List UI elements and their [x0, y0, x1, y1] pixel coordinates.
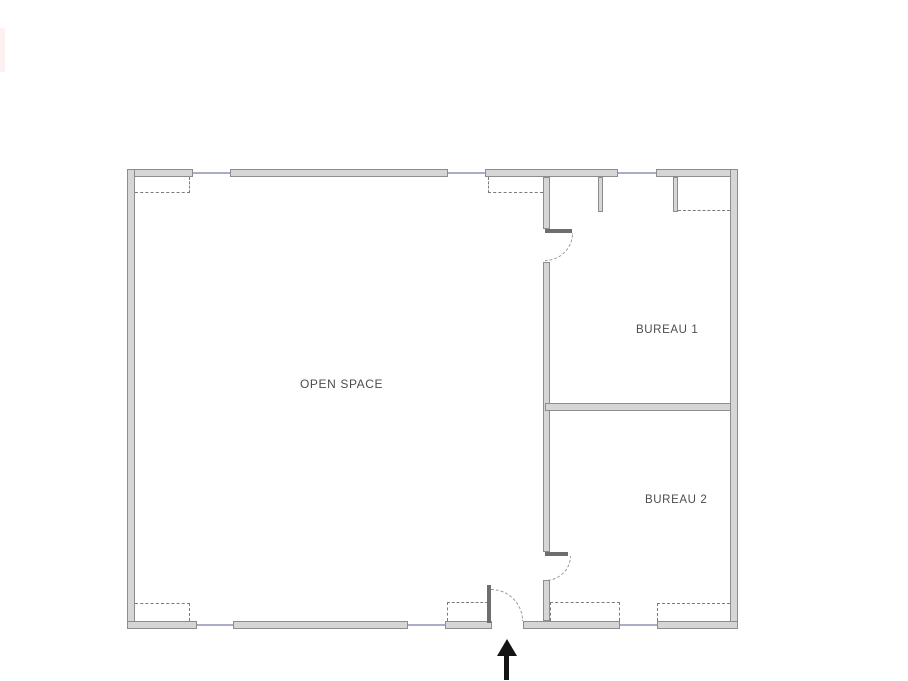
room-label-bureau-2: BUREAU 2 — [645, 494, 707, 506]
wall-divider-horizontal — [545, 403, 731, 411]
wall-bottom-5 — [657, 621, 738, 629]
dashed-radiator-top-left — [135, 177, 190, 193]
door-arc-bureau2 — [545, 556, 571, 581]
wall-stub-1 — [598, 177, 603, 212]
room-label-bureau-1: BUREAU 1 — [636, 324, 698, 336]
edge-artifact — [0, 28, 5, 72]
door-arc-entrance — [491, 589, 523, 621]
wall-bottom-4 — [523, 621, 620, 629]
wall-bottom-3 — [445, 621, 492, 629]
wall-top-1 — [127, 169, 193, 177]
room-label-open-space: OPEN SPACE — [300, 377, 383, 391]
wall-right — [730, 169, 738, 629]
window-bottom-2 — [408, 624, 445, 626]
wall-bottom-2 — [233, 621, 408, 629]
wall-top-4 — [656, 169, 738, 177]
dashed-radiator-top-right — [678, 177, 730, 211]
door-arc-bureau1 — [545, 233, 573, 261]
dashed-radiator-top-middle — [488, 177, 543, 193]
wall-left — [127, 169, 135, 629]
wall-divider-vertical-3 — [543, 580, 550, 621]
wall-bottom-1 — [127, 621, 197, 629]
window-top-3 — [618, 172, 656, 174]
wall-top-3 — [485, 169, 618, 177]
window-top-2 — [448, 172, 485, 174]
floor-plan: OPEN SPACE BUREAU 1 BUREAU 2 — [0, 0, 908, 681]
window-top-1 — [193, 172, 230, 174]
window-bottom-1 — [197, 624, 233, 626]
wall-top-2 — [230, 169, 448, 177]
dashed-radiator-bottom-entrance — [447, 602, 488, 621]
dashed-radiator-bottom-left — [135, 603, 190, 621]
wall-divider-vertical-1 — [543, 177, 550, 229]
dashed-radiator-bureau2-right — [657, 603, 730, 621]
window-bottom-3 — [620, 624, 657, 626]
entrance-arrow-shaft — [504, 654, 509, 680]
dashed-radiator-bureau2-left — [550, 602, 620, 621]
